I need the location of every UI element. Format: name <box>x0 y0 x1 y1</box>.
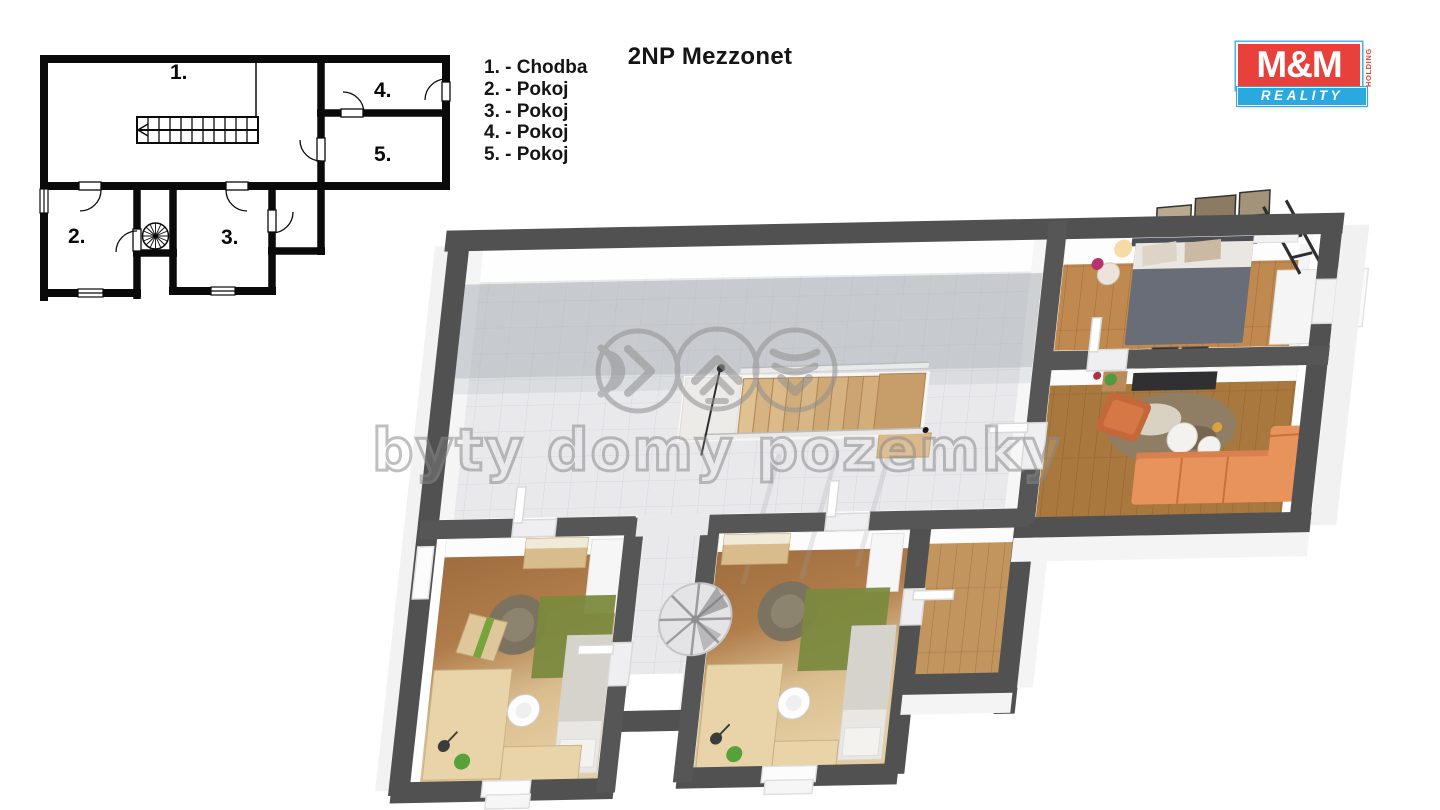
room-label-2: 2. <box>68 225 86 248</box>
page-root: { "title": "2NP Mezzonet", "legend": { "… <box>0 0 1440 810</box>
logo-holding-text: HOLDING <box>1364 45 1373 87</box>
plan2d-spiral-stair <box>143 223 169 249</box>
shelf-top <box>525 538 588 549</box>
floorplan-scene: byty domy pozemky <box>0 0 1440 810</box>
legend-item: 2. - Pokoj <box>484 79 587 101</box>
shelf-top <box>723 534 790 545</box>
watermark-text: byty domy pozemky <box>372 416 1062 484</box>
room3-window-box <box>764 780 814 795</box>
tv-screen <box>1131 371 1217 391</box>
desk-return <box>500 745 582 781</box>
legend-item: 5. - Pokoj <box>484 144 587 166</box>
wardrobe <box>866 533 904 592</box>
hall-corridor-opening <box>636 514 710 536</box>
bed-pillow <box>842 727 881 756</box>
legend-item: 1. - Chodba <box>484 57 587 79</box>
legend: 1. - Chodba 2. - Pokoj 3. - Pokoj 4. - P… <box>484 57 587 166</box>
room-label-1: 1. <box>170 61 188 84</box>
small-room-door-leaf <box>913 590 954 600</box>
corridor-door-leaf <box>578 645 614 655</box>
room2-window-box <box>485 794 531 809</box>
floorplan-page: byty domy pozemky <box>0 0 1440 810</box>
small-room-north-wall-face <box>929 528 1015 544</box>
plan2d-room-labels: 1. 2. 3. 4. 5. <box>68 61 392 249</box>
room-label-3: 3. <box>221 226 239 249</box>
mm-reality-logo: M&M HOLDING REALITY <box>1236 42 1378 112</box>
room-label-5: 5. <box>374 143 392 166</box>
page-title: 2NP Mezzonet <box>555 43 865 71</box>
logo-mm-mark: M&M <box>1236 42 1362 90</box>
legend-item: 3. - Pokoj <box>484 101 587 123</box>
logo-reality-text: REALITY <box>1237 87 1367 106</box>
pillow <box>1184 239 1221 263</box>
hall-shadow-band <box>454 273 1042 379</box>
legend-item: 4. - Pokoj <box>484 122 587 144</box>
plan2d-stairs <box>137 117 258 143</box>
room-label-4: 4. <box>374 79 392 102</box>
small-room-floor-planks <box>914 528 1015 680</box>
floorplan-2d: 1. 2. 3. 4. 5. <box>40 55 450 301</box>
floorplan-3d <box>373 188 1378 810</box>
